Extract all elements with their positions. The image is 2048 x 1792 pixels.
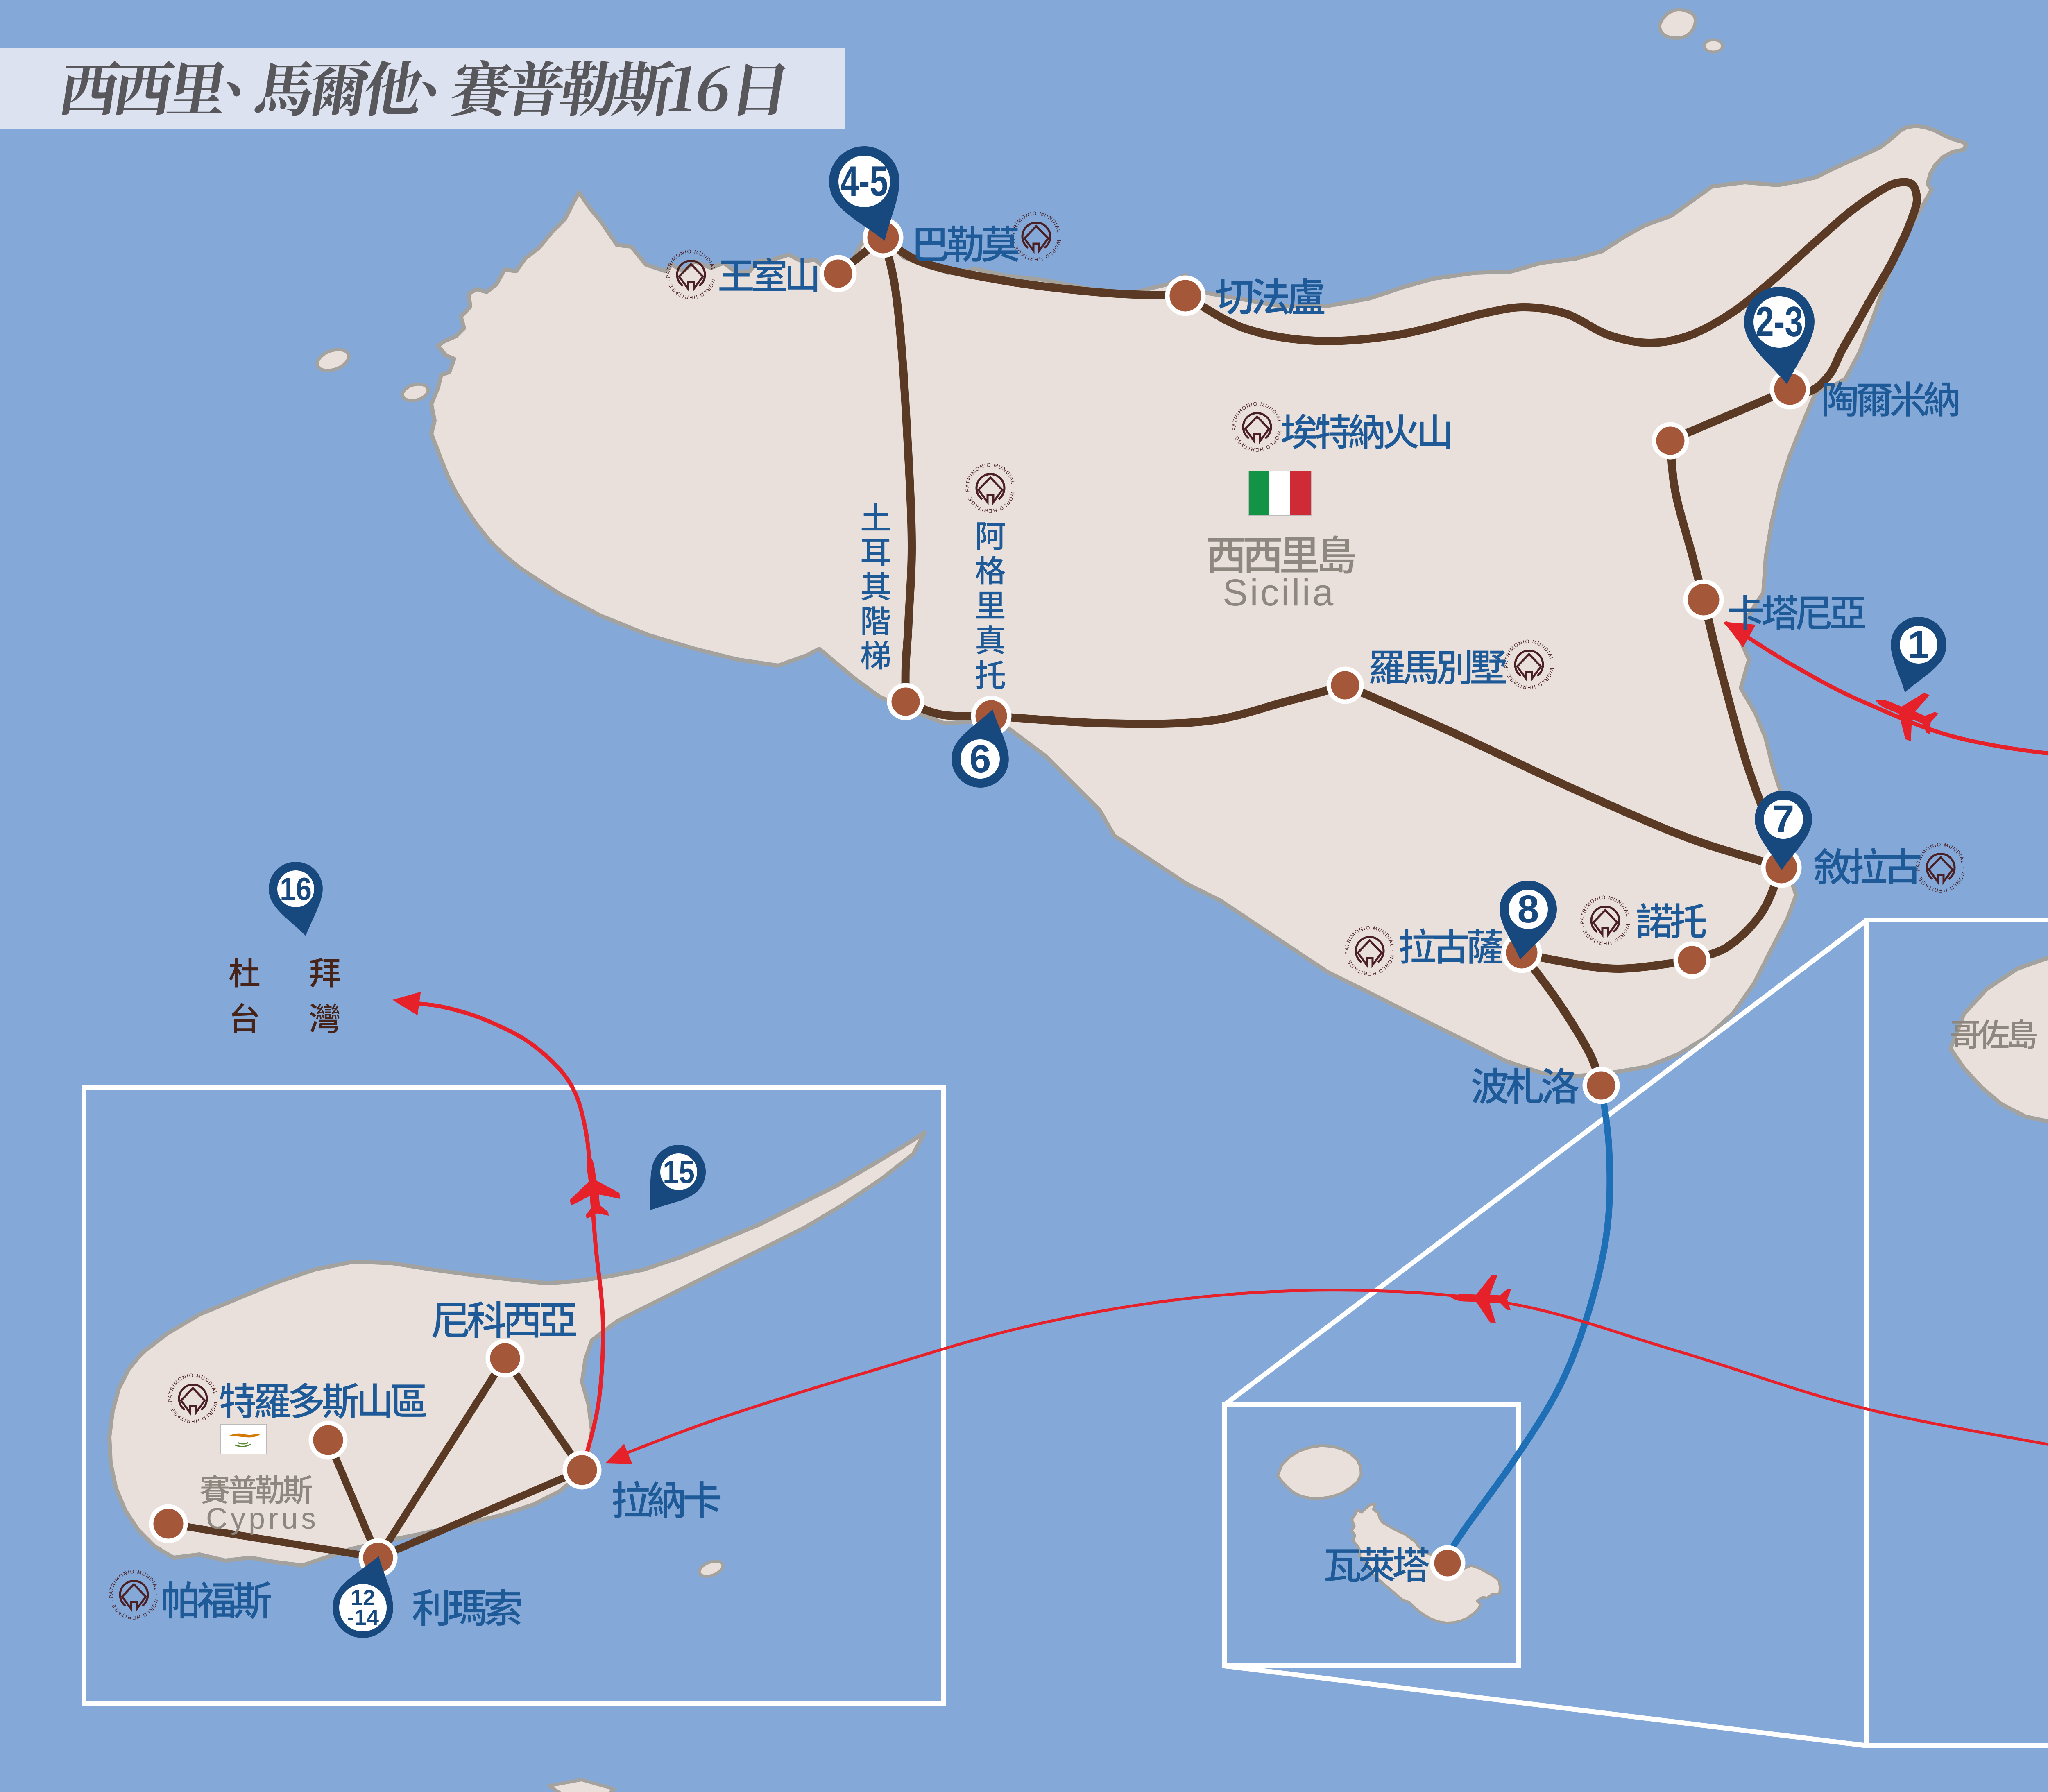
svg-text:6: 6: [970, 737, 991, 781]
svg-text:7: 7: [1773, 797, 1794, 841]
svg-text:Sicilia: Sicilia: [1223, 572, 1335, 614]
svg-text:-14: -14: [347, 1605, 379, 1630]
svg-text:15: 15: [663, 1154, 695, 1190]
svg-text:16: 16: [280, 871, 312, 907]
svg-text:2-3: 2-3: [1756, 298, 1803, 346]
svg-text:8: 8: [1518, 888, 1539, 931]
svg-text:1: 1: [1908, 623, 1930, 666]
svg-text:Cyprus: Cyprus: [206, 1502, 319, 1535]
svg-text:4-5: 4-5: [840, 158, 888, 205]
